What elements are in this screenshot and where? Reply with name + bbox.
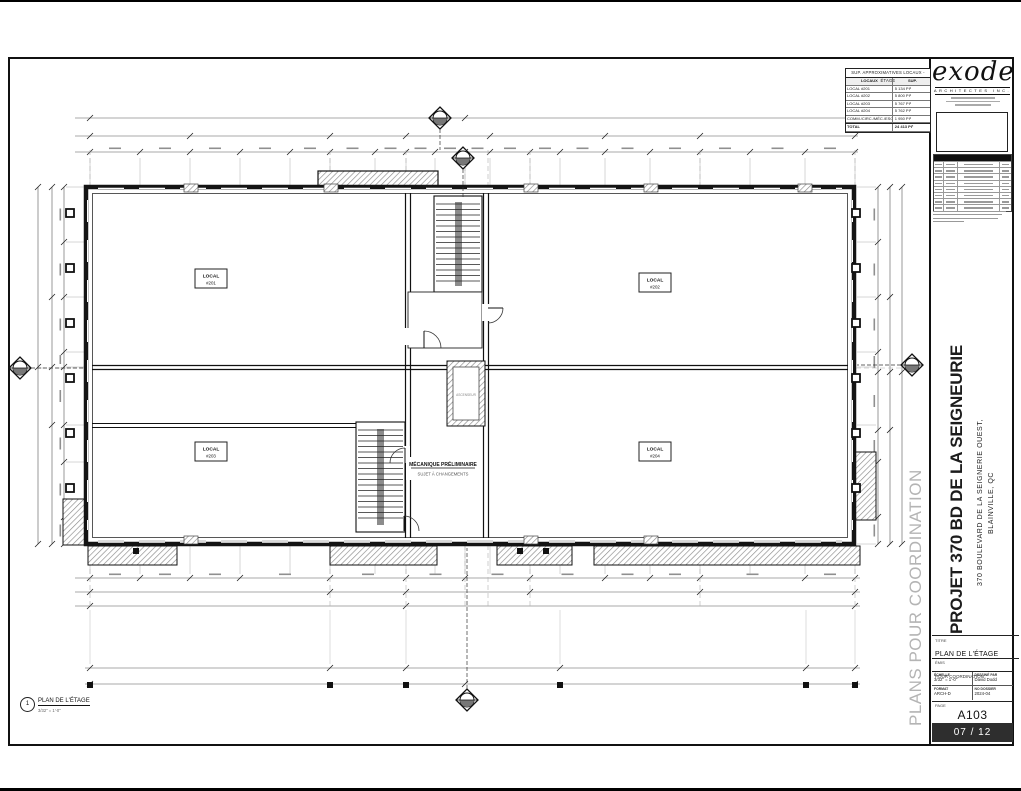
revision-row [934, 180, 1011, 186]
table-total-row: TOTAL24 413 PI² [846, 123, 930, 132]
page-label: PAGE [935, 703, 946, 708]
project-title: PROJET 370 BD DE LA SEIGNEURIE [947, 376, 967, 634]
revision-table [933, 154, 1012, 212]
info-grid: ÉCHELLE3/32" = 1'-0" DESSINÉ PARDavid Do… [932, 671, 1013, 700]
table-row: LOCAL #2015 134 PI² [846, 86, 930, 94]
firm-address-line [946, 101, 1000, 103]
revision-row [934, 173, 1011, 179]
firm-logo: exode ARCHITECTES INC. [932, 57, 1013, 111]
revision-row [934, 198, 1011, 204]
view-number-bubble: 1 [20, 697, 35, 712]
format-value: ARCH-D [934, 691, 970, 696]
emis-label: ÉMIS [935, 660, 1016, 665]
dossier-value: 2024-04 [975, 691, 1012, 696]
table-row: LOCAL #2045 762 PI² [846, 108, 930, 116]
legal-fineprint [933, 208, 1010, 222]
view-scale: 3/32" = 1'-0" [38, 708, 61, 713]
logo-wordmark: exode [932, 57, 1013, 87]
sheet-border [8, 57, 1014, 746]
scale-value: 3/32" = 1'-0" [934, 677, 970, 682]
table-row: LOCAL #2025 800 PI² [846, 93, 930, 101]
titleblock: exode ARCHITECTES INC. PROJET 370 BD DE … [932, 57, 1013, 746]
project-address-line2: BLAINVILLE, QC [988, 405, 995, 601]
logo-subtitle: ARCHITECTES INC. [932, 88, 1013, 94]
titre-label: TITRE [935, 638, 1016, 643]
revision-row [934, 167, 1011, 173]
project-address-line1: 370 BOULEVARD DE LA SEIGNERIE OUEST, [977, 405, 984, 601]
revision-row [934, 186, 1011, 192]
view-title: PLAN DE L'ÉTAGE [38, 698, 90, 706]
firm-address-line [955, 104, 991, 106]
coordination-watermark: PLANS POUR COORDINATION [906, 486, 926, 726]
area-table-title: SUP. APPROXIMATIVES LOCAUX - ÉTAGE [846, 69, 930, 78]
seal-box [936, 112, 1008, 152]
area-summary-table: SUP. APPROXIMATIVES LOCAUX - ÉTAGE LOCAU… [845, 68, 931, 133]
page-count-band: 07 / 12 [932, 723, 1013, 742]
sheet-number: A103 [932, 708, 1013, 722]
table-row: LOCAL #2035 767 PI² [846, 101, 930, 109]
table-row: COMM./CIRC./MÉC./ESCALIERS1 950 PI² [846, 116, 930, 124]
sheet-title: PLAN DE L'ÉTAGE [935, 651, 998, 658]
drawnby-value: David Dodd [975, 677, 1012, 682]
revision-row [934, 161, 1011, 167]
titleblock-divider [929, 57, 931, 746]
area-table-header: LOCAUX SUP. [846, 78, 930, 86]
drawing-sheet: LOCAL #201 LOCAL #202 LOCAL #203 LOCAL #… [0, 0, 1021, 791]
revision-row [934, 192, 1011, 198]
firm-address-line [951, 97, 995, 99]
sheet-number-section: PAGE A103 [932, 701, 1013, 724]
